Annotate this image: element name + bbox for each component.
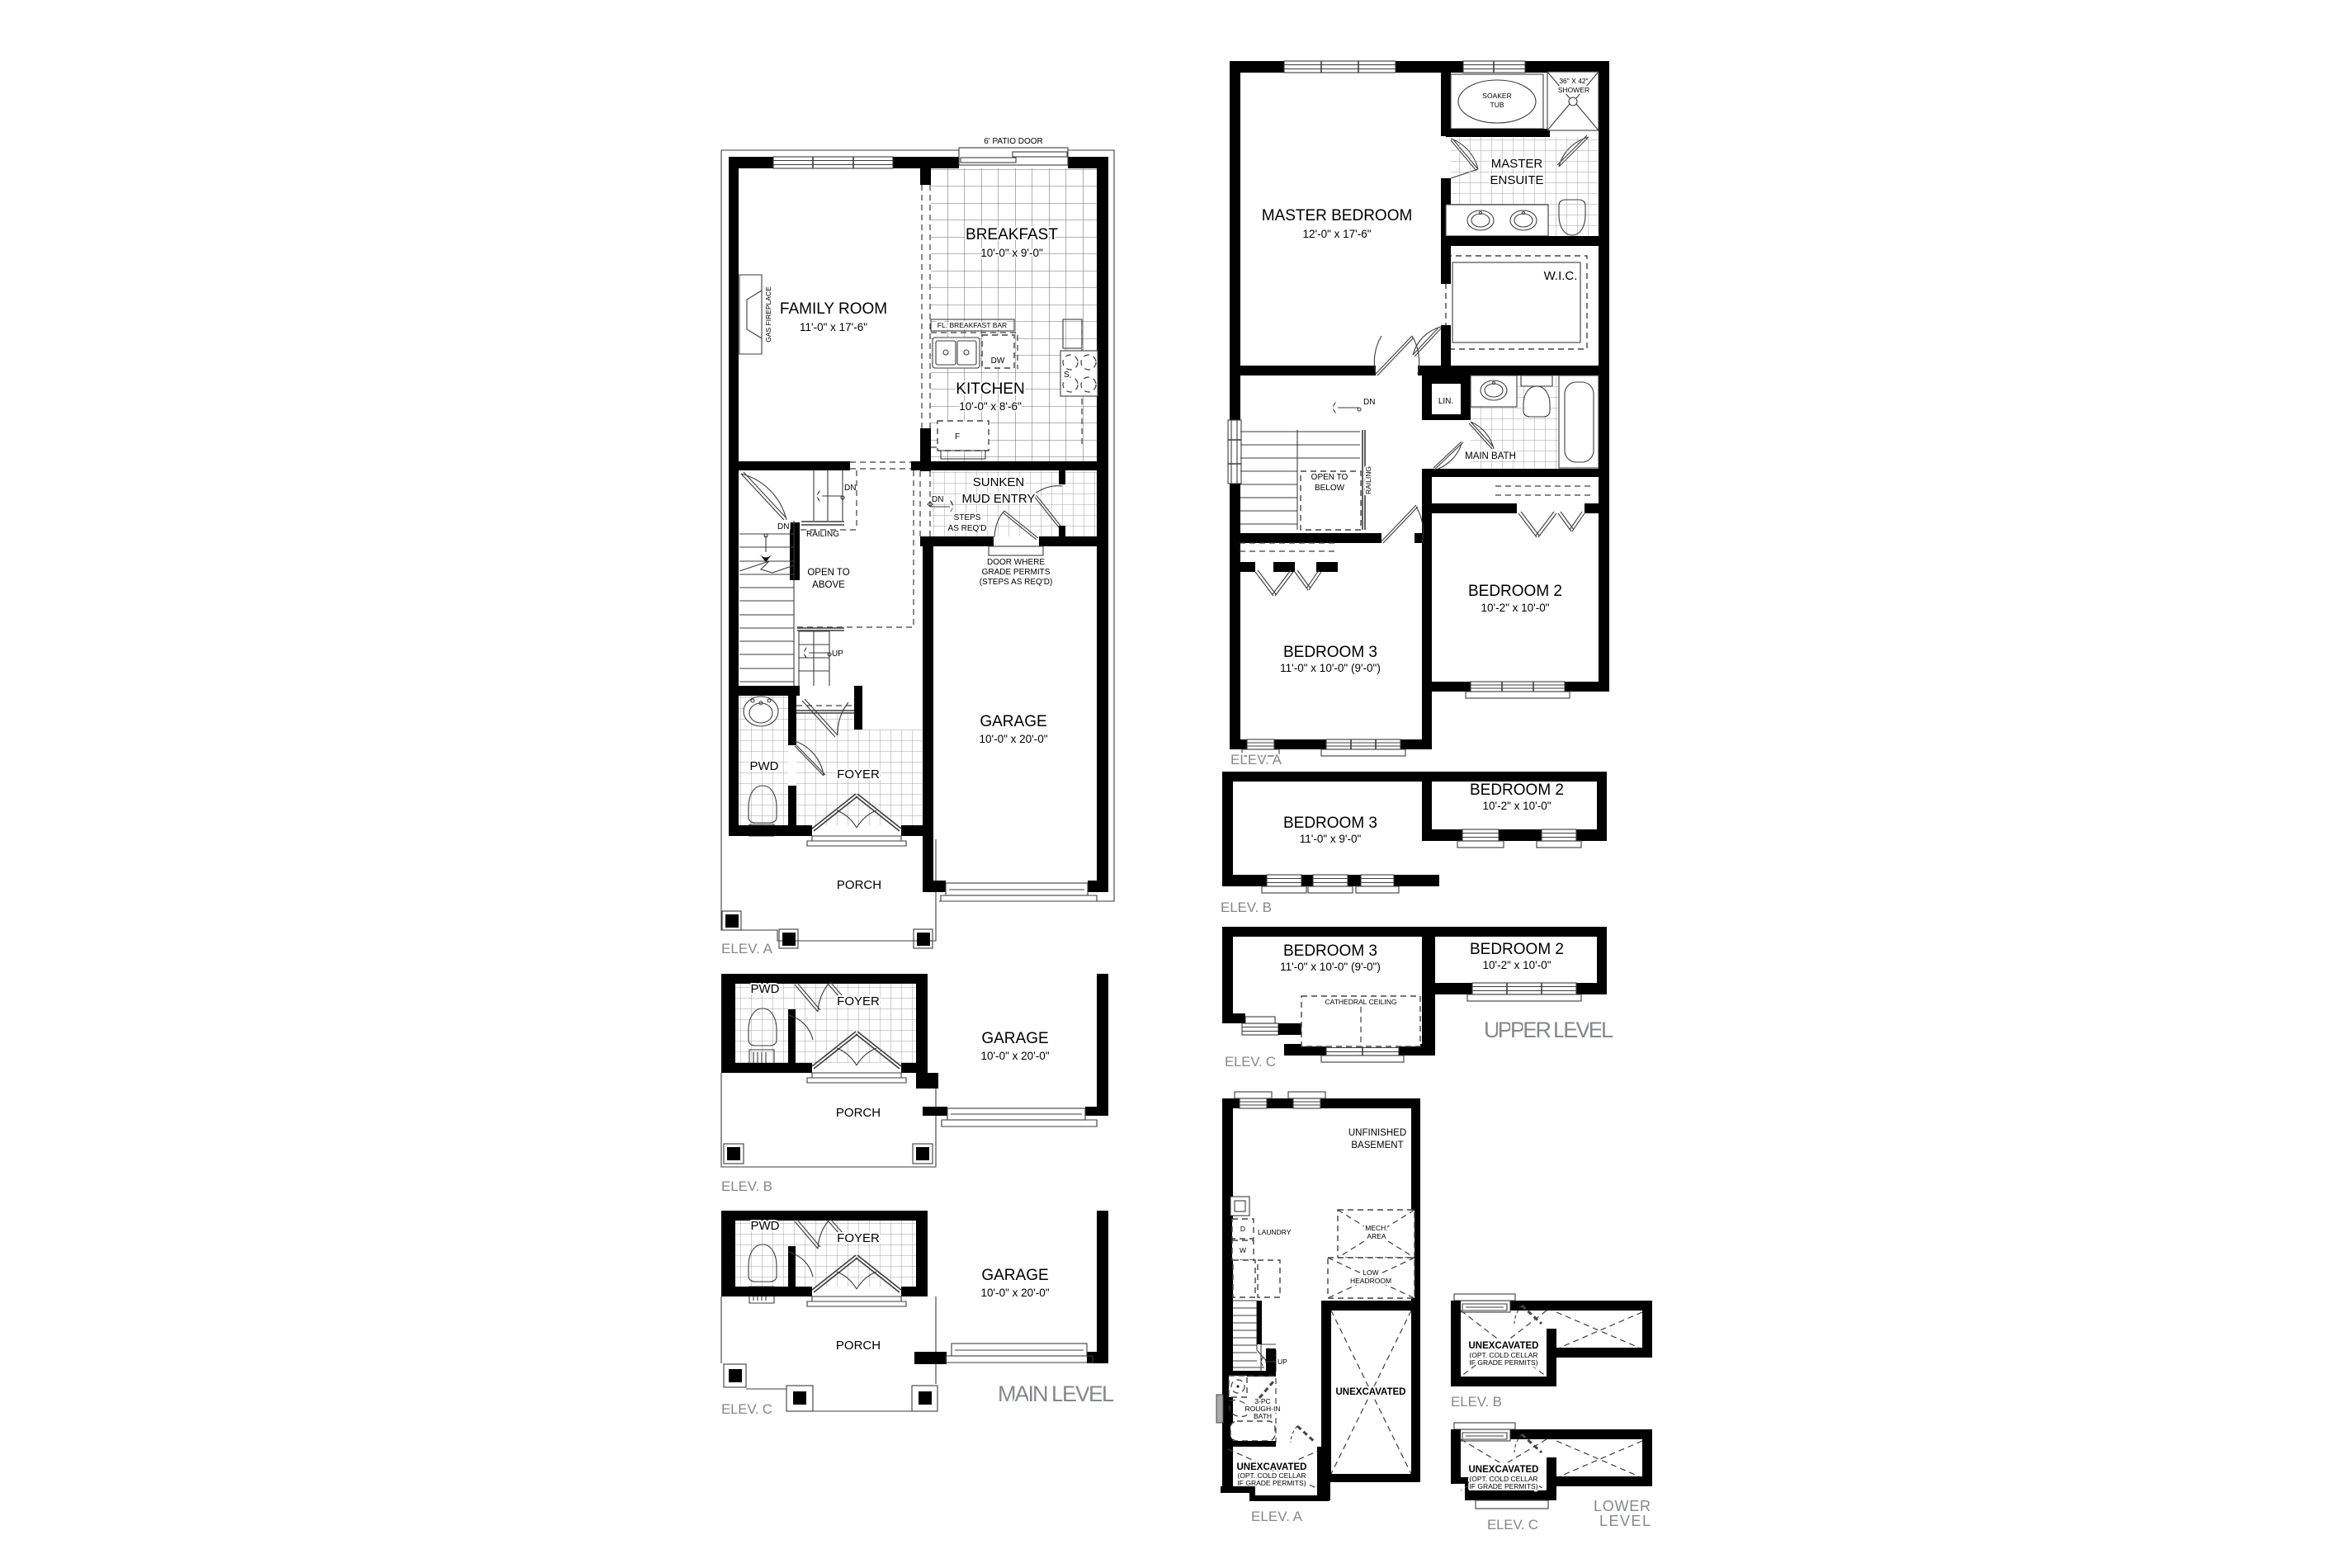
svg-text:BEDROOM 3: BEDROOM 3 [1283,942,1377,960]
svg-text:PWD: PWD [751,1219,780,1233]
svg-text:ELEV. B: ELEV. B [1221,900,1272,915]
svg-text:RAILING: RAILING [806,530,839,539]
svg-text:36" X 42": 36" X 42" [1559,77,1588,85]
svg-text:KITCHEN: KITCHEN [956,380,1024,398]
svg-text:MAIN LEVEL: MAIN LEVEL [998,1381,1114,1406]
svg-text:AREA: AREA [1367,1232,1386,1240]
svg-text:IF GRADE PERMITS): IF GRADE PERMITS) [1469,1358,1537,1367]
svg-text:GRADE PERMITS: GRADE PERMITS [982,568,1051,577]
svg-text:PWD: PWD [750,759,779,773]
svg-text:MASTER: MASTER [1491,157,1543,171]
svg-text:HEADROOM: HEADROOM [1350,1277,1391,1285]
svg-text:BEDROOM 3: BEDROOM 3 [1283,815,1377,832]
svg-text:UP: UP [1278,1358,1287,1366]
svg-text:GARAGE: GARAGE [980,713,1046,730]
svg-text:UNFINISHED: UNFINISHED [1348,1128,1406,1138]
svg-text:FL. BREAKFAST BAR: FL. BREAKFAST BAR [937,321,1007,329]
svg-text:BEDROOM 2: BEDROOM 2 [1470,941,1564,958]
svg-text:STEPS: STEPS [954,513,981,522]
svg-text:FOYER: FOYER [837,767,880,782]
svg-text:PWD: PWD [751,982,780,996]
svg-text:10'-2" x 10'-0": 10'-2" x 10'-0" [1481,602,1549,614]
svg-text:PORCH: PORCH [837,878,881,892]
svg-text:10'-0" x 20'-0": 10'-0" x 20'-0" [980,1050,1049,1062]
svg-text:GARAGE: GARAGE [981,1267,1048,1284]
svg-text:10'-0" x 20'-0": 10'-0" x 20'-0" [980,1287,1049,1299]
svg-text:F: F [955,432,960,442]
svg-text:11'-0" x 9'-0": 11'-0" x 9'-0" [1300,833,1362,845]
svg-text:BEDROOM 3: BEDROOM 3 [1283,644,1377,661]
svg-text:11'-0" x 10'-0" (9'-0"): 11'-0" x 10'-0" (9'-0") [1280,662,1381,674]
svg-text:ENSUITE: ENSUITE [1490,173,1543,187]
svg-text:LOW: LOW [1363,1268,1378,1277]
svg-text:11'-0" x 10'-0" (9'-0"): 11'-0" x 10'-0" (9'-0") [1280,961,1381,973]
svg-text:LIN.: LIN. [1438,397,1453,406]
svg-text:ELEV. B: ELEV. B [721,1178,772,1194]
svg-text:ELEV. A: ELEV. A [1251,1509,1303,1524]
svg-text:MASTER BEDROOM: MASTER BEDROOM [1262,207,1413,224]
svg-text:FOYER: FOYER [837,1231,880,1245]
svg-text:10'-2" x 10'-0": 10'-2" x 10'-0" [1482,800,1551,812]
svg-text:CATHEDRAL CEILING: CATHEDRAL CEILING [1325,998,1397,1006]
svg-text:BELOW: BELOW [1315,484,1345,493]
svg-text:10'-0" x 9'-0": 10'-0" x 9'-0" [980,247,1043,259]
svg-text:IF GRADE PERMITS): IF GRADE PERMITS) [1469,1482,1537,1490]
svg-text:RAILING: RAILING [1364,466,1372,494]
svg-text:FAMILY ROOM: FAMILY ROOM [780,300,887,318]
svg-text:DN: DN [932,495,943,504]
svg-text:UPPER LEVEL: UPPER LEVEL [1484,1018,1613,1042]
svg-text:SOAKER: SOAKER [1482,92,1511,100]
svg-text:DN: DN [777,522,789,531]
svg-text:W.I.C.: W.I.C. [1544,269,1578,283]
svg-text:UP: UP [832,649,843,659]
svg-text:MAIN BATH: MAIN BATH [1465,451,1516,461]
svg-text:W: W [1240,1246,1246,1254]
svg-text:ELEV. C: ELEV. C [1225,1054,1276,1070]
svg-text:LEVEL: LEVEL [1599,1513,1651,1529]
svg-text:ELEV. A: ELEV. A [1230,752,1282,767]
svg-text:ELEV. C: ELEV. C [1487,1517,1538,1533]
svg-text:PORCH: PORCH [836,1106,881,1120]
svg-text:ELEV. A: ELEV. A [721,941,773,956]
svg-text:DOOR WHERE: DOOR WHERE [987,558,1045,567]
svg-text:OPEN TO: OPEN TO [1311,473,1348,482]
svg-text:D: D [1240,1225,1245,1233]
svg-text:UNEXCAVATED: UNEXCAVATED [1469,1341,1539,1351]
svg-text:BATH: BATH [1254,1412,1272,1420]
svg-text:SUNKEN: SUNKEN [973,475,1025,489]
svg-text:MECH.: MECH. [1365,1224,1387,1232]
svg-text:12'-0" x 17'-6": 12'-0" x 17'-6" [1302,228,1371,240]
svg-text:GAS FIREPLACE: GAS FIREPLACE [764,286,772,342]
svg-text:11'-0" x 17'-6": 11'-0" x 17'-6" [800,321,867,333]
svg-text:BEDROOM 2: BEDROOM 2 [1468,583,1562,600]
svg-text:LOWER: LOWER [1594,1498,1651,1514]
svg-text:OPEN TO: OPEN TO [807,568,849,578]
svg-text:S: S [1064,371,1070,380]
svg-text:10'-2" x 10'-0": 10'-2" x 10'-0" [1482,959,1551,971]
svg-text:10'-0" x 20'-0": 10'-0" x 20'-0" [979,733,1047,745]
svg-text:TUB: TUB [1490,101,1504,109]
svg-text:UNEXCAVATED: UNEXCAVATED [1336,1387,1406,1397]
svg-text:LAUNDRY: LAUNDRY [1258,1228,1292,1236]
svg-text:DW: DW [991,357,1005,366]
svg-text:IF GRADE PERMITS): IF GRADE PERMITS) [1237,1479,1306,1487]
svg-text:6' PATIO DOOR: 6' PATIO DOOR [984,137,1043,146]
svg-text:UNEXCAVATED: UNEXCAVATED [1469,1465,1539,1475]
svg-text:FOYER: FOYER [837,994,880,1008]
svg-text:(STEPS AS REQ'D): (STEPS AS REQ'D) [980,578,1053,587]
svg-text:10'-0" x 8'-6": 10'-0" x 8'-6" [959,400,1022,413]
svg-text:GARAGE: GARAGE [981,1030,1048,1047]
svg-text:DN: DN [844,484,856,493]
svg-text:ELEV. C: ELEV. C [721,1401,772,1417]
svg-text:MUD ENTRY: MUD ENTRY [962,492,1036,506]
svg-text:PORCH: PORCH [836,1339,881,1353]
svg-text:DN: DN [1363,398,1375,407]
svg-text:BASEMENT: BASEMENT [1351,1141,1403,1150]
svg-text:BREAKFAST: BREAKFAST [966,226,1058,243]
svg-text:ELEV. B: ELEV. B [1451,1394,1502,1410]
svg-text:AS REQ'D: AS REQ'D [948,524,987,533]
svg-text:ABOVE: ABOVE [812,580,845,590]
svg-text:BEDROOM 2: BEDROOM 2 [1470,782,1564,799]
svg-text:SHOWER: SHOWER [1558,86,1589,94]
